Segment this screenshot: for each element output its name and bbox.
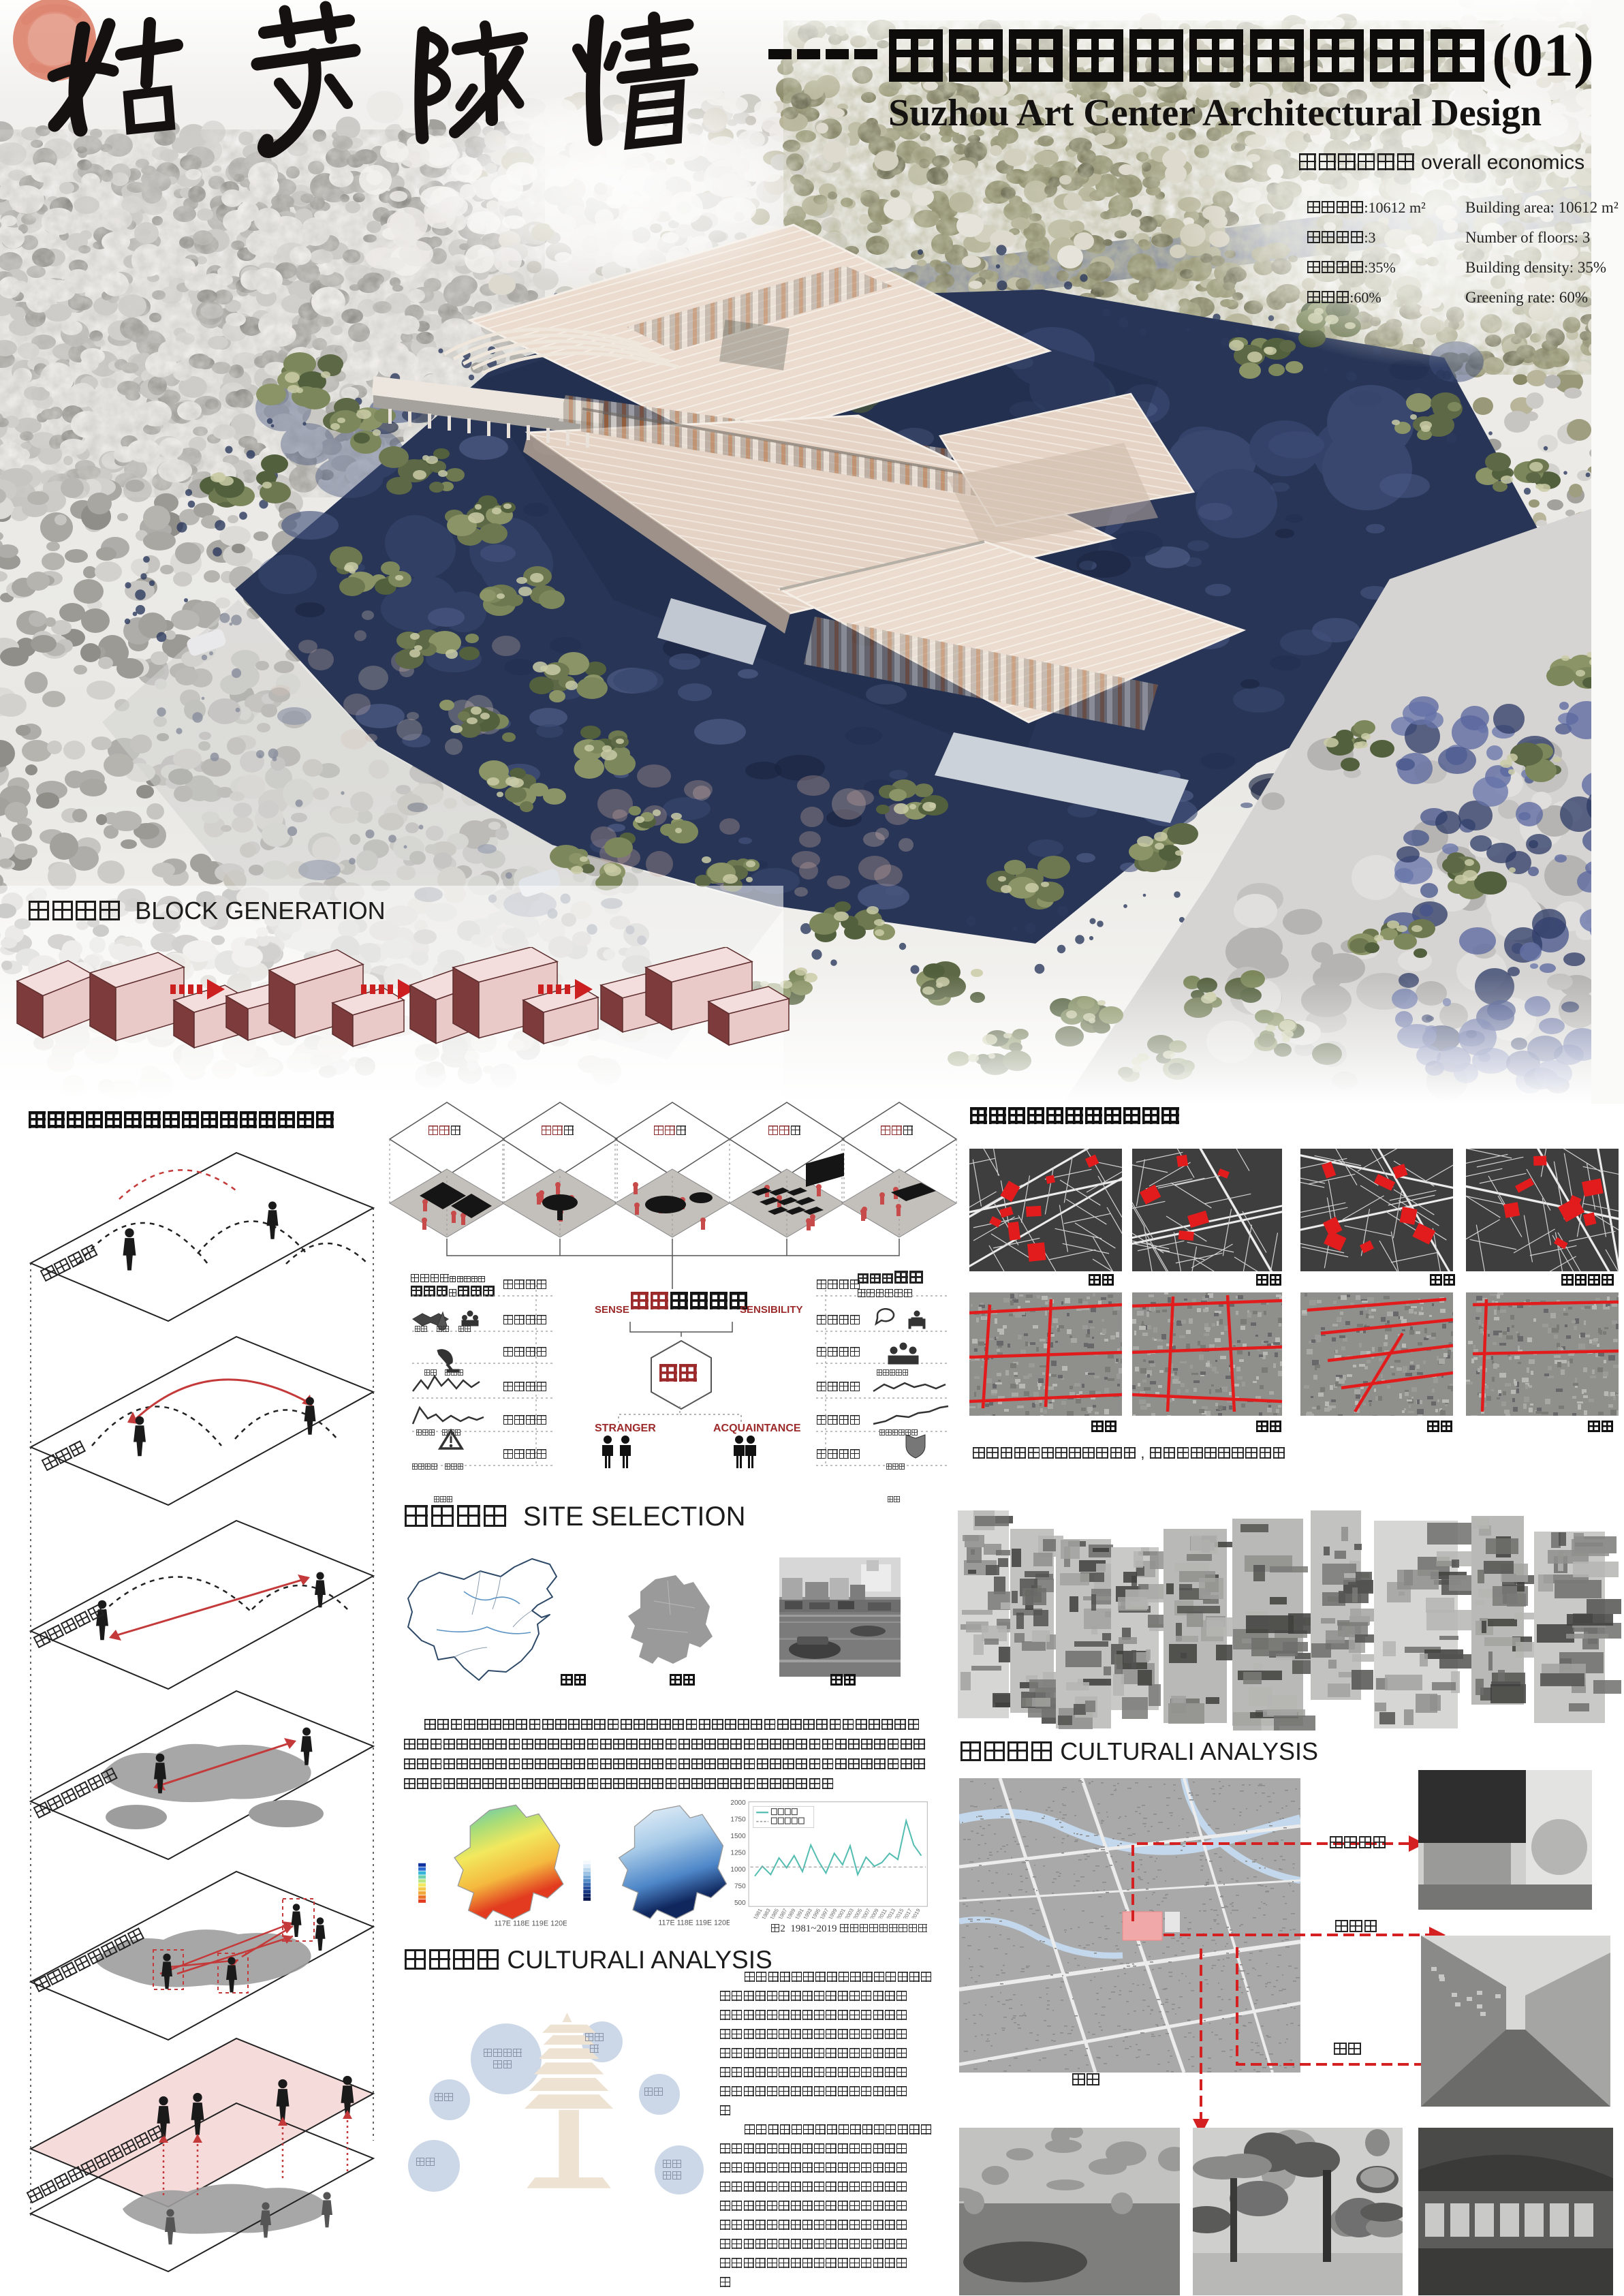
svg-text:2019: 2019 xyxy=(910,1908,921,1919)
svg-text:500: 500 xyxy=(734,1899,746,1907)
svg-text:1250: 1250 xyxy=(730,1850,746,1857)
svg-text:117E 118E 119E 120E: 117E 118E 119E 120E xyxy=(495,1920,567,1928)
svg-text:1500: 1500 xyxy=(730,1833,746,1840)
svg-text:2000: 2000 xyxy=(730,1799,746,1807)
svg-text:1000: 1000 xyxy=(730,1866,746,1874)
svg-text:1750: 1750 xyxy=(730,1816,746,1824)
svg-text:117E 118E 119E 120E: 117E 118E 119E 120E xyxy=(658,1919,730,1927)
svg-text:750: 750 xyxy=(734,1882,746,1890)
